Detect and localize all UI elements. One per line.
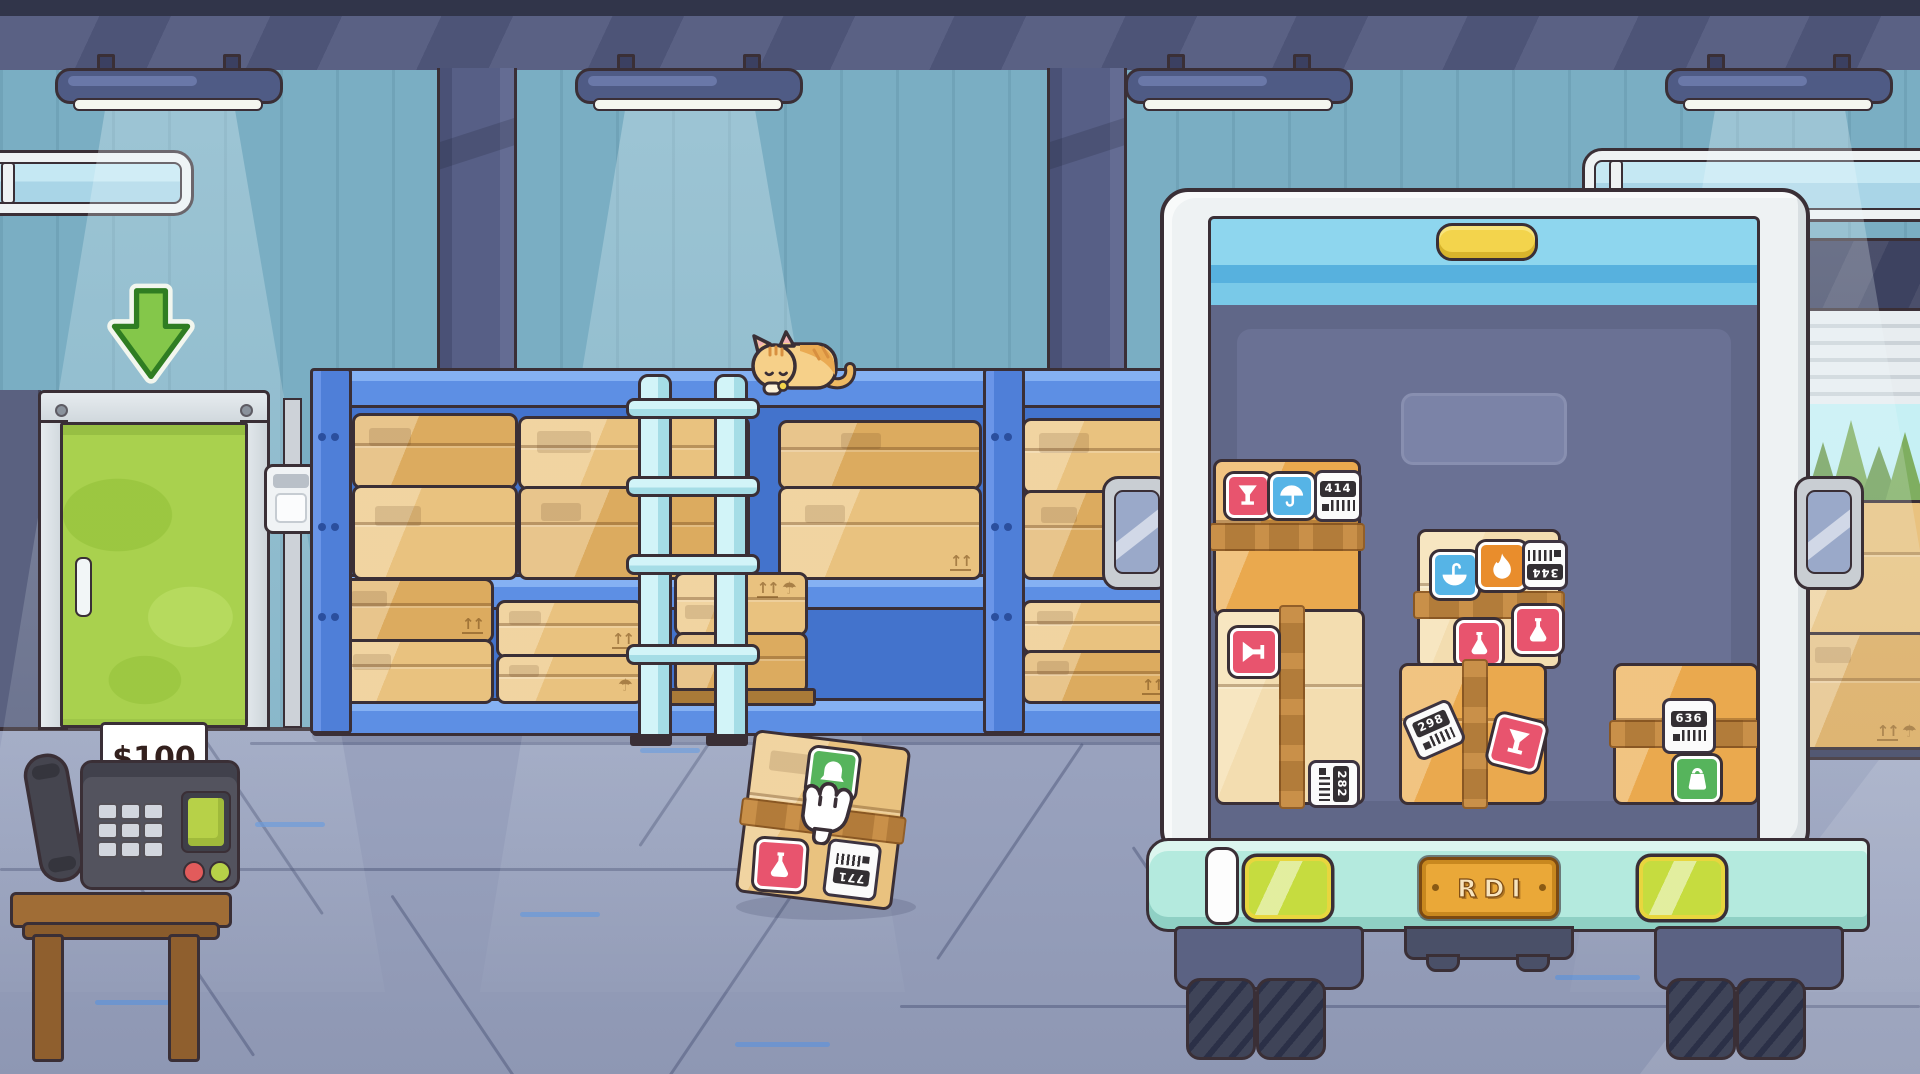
flask-sticker-icon xyxy=(753,838,806,891)
table-leg xyxy=(168,934,200,1062)
terminal-key[interactable] xyxy=(97,803,118,820)
light-highlight xyxy=(1678,76,1807,86)
flask-sticker-icon xyxy=(1514,606,1562,654)
light-glow xyxy=(1143,98,1333,111)
ladder-rung xyxy=(626,554,760,575)
table-leg xyxy=(32,934,64,1062)
printed-icon-up-umb: ↑↑☂ xyxy=(757,581,797,598)
light-highlight xyxy=(1138,76,1267,86)
cargo-wall-plate xyxy=(1401,393,1567,465)
window-glass xyxy=(0,162,182,204)
terminal-key[interactable] xyxy=(143,803,164,820)
floor-dash xyxy=(520,912,600,917)
axle-tab xyxy=(1516,954,1550,972)
weight-sticker-icon xyxy=(1674,756,1720,802)
shelf-box[interactable]: ↑↑ xyxy=(496,600,644,658)
umbrella-sticker-icon xyxy=(1432,552,1478,598)
shelf-box[interactable] xyxy=(1022,600,1174,654)
shelf-box[interactable] xyxy=(352,413,518,489)
floor-dash xyxy=(640,748,700,753)
terminal-key[interactable] xyxy=(143,841,164,858)
ceiling-dark-band xyxy=(0,0,1920,16)
light-highlight xyxy=(68,76,197,86)
terminal-key[interactable] xyxy=(120,822,141,839)
tail-light-right xyxy=(1639,857,1725,919)
warehouse-game-scene: ↑↑☂ ↑↑↑↑↑↑☂↑↑☂↑↑ xyxy=(0,0,1920,1074)
bumper-stripe xyxy=(1205,847,1239,925)
terminal-key[interactable] xyxy=(97,822,118,839)
terminal-key[interactable] xyxy=(97,841,118,858)
shelf-box[interactable]: ☂ xyxy=(496,654,644,704)
fragile-sticker-icon xyxy=(1230,628,1278,676)
floor-dash xyxy=(255,822,325,827)
barcode-number: 414 xyxy=(1320,481,1355,497)
light-glow xyxy=(1683,98,1873,111)
barcode-number: 282 xyxy=(1333,766,1349,801)
license-plate: RDI xyxy=(1419,857,1559,919)
license-plate-text: RDI xyxy=(1450,874,1527,903)
barcode-sticker: 636 xyxy=(1662,698,1716,754)
barcode-sticker: 298 xyxy=(1400,697,1467,762)
truck-tire xyxy=(1256,978,1326,1060)
floor-dash xyxy=(735,1042,830,1047)
truck-cargo-box[interactable]: 298 xyxy=(1399,663,1547,805)
sleeping-cat[interactable] xyxy=(742,326,866,404)
ladder-rung xyxy=(626,644,760,665)
green-door[interactable] xyxy=(60,422,248,728)
barcode-number: 344 xyxy=(1528,564,1563,580)
fire-sticker-icon xyxy=(1478,542,1526,590)
shelf-box[interactable]: ↑↑ xyxy=(338,578,494,643)
tail-light-left xyxy=(1245,857,1331,919)
delivery-truck: 414282344298636 RDI xyxy=(1160,188,1920,1074)
truck-cargo-area[interactable]: 414282344298636 xyxy=(1211,305,1757,851)
umbrella-sticker-icon xyxy=(1270,474,1314,518)
ceiling-striped-band xyxy=(0,16,1920,74)
barcode-number: 771 xyxy=(833,867,870,887)
terminal-keypad[interactable] xyxy=(97,803,169,863)
shelf-box[interactable] xyxy=(338,639,494,704)
wall-shadow-strip xyxy=(0,390,41,728)
fragile-sticker-icon xyxy=(1487,713,1548,774)
truck-cargo-opening[interactable]: 414282344298636 xyxy=(1208,216,1760,854)
barcode-sticker: 414 xyxy=(1314,470,1362,522)
shelf-post xyxy=(310,368,352,734)
printed-icon-up: ↑↑ xyxy=(950,554,971,571)
terminal-key[interactable] xyxy=(120,841,141,858)
axle-tab xyxy=(1426,954,1460,972)
wall-window-left xyxy=(0,150,194,216)
barcode-sticker: 344 xyxy=(1522,540,1568,590)
truck-shutter xyxy=(1211,219,1757,309)
shelf-box[interactable]: ↑↑ xyxy=(778,486,982,580)
card-payment-terminal[interactable] xyxy=(80,760,240,890)
shutter-handle[interactable] xyxy=(1436,223,1538,261)
ladder-rung xyxy=(626,398,760,419)
ladder-foot xyxy=(630,734,672,746)
shelf-box[interactable] xyxy=(352,485,518,580)
down-arrow-icon xyxy=(101,282,201,390)
truck-cargo-box[interactable]: 636 xyxy=(1613,663,1759,805)
truck-bumper: RDI xyxy=(1146,838,1870,932)
truck-cargo-box[interactable]: 282 xyxy=(1215,609,1365,805)
terminal-key[interactable] xyxy=(143,822,164,839)
wall-conduit xyxy=(283,398,302,728)
support-column xyxy=(1047,68,1127,383)
shelf-box[interactable] xyxy=(778,420,982,490)
door-handle xyxy=(75,557,92,617)
barcode-sticker: 282 xyxy=(1308,760,1360,808)
terminal-red-button[interactable] xyxy=(183,861,205,883)
barcode-number: 636 xyxy=(1671,711,1706,727)
shelf-post xyxy=(983,368,1025,734)
truck-cargo-box[interactable]: 414 xyxy=(1213,459,1361,617)
terminal-key[interactable] xyxy=(120,803,141,820)
ladder-foot xyxy=(706,734,748,746)
ladder-rung xyxy=(626,476,760,497)
light-glow xyxy=(593,98,783,111)
truck-cargo-box[interactable]: 344 xyxy=(1417,529,1561,669)
shelf-box[interactable]: ↑↑ xyxy=(1022,650,1174,704)
truck-tire xyxy=(1736,978,1806,1060)
light-highlight xyxy=(588,76,717,86)
support-column xyxy=(437,68,517,383)
dragged-box[interactable]: 771 xyxy=(735,729,912,911)
printed-icon-up: ↑↑ xyxy=(462,617,483,634)
fragile-sticker-icon xyxy=(1226,474,1270,518)
light-glow xyxy=(73,98,263,111)
terminal-screen xyxy=(181,791,231,853)
terminal-green-button[interactable] xyxy=(209,861,231,883)
printed-icon-umbrella: ☂ xyxy=(618,678,633,695)
window-divider xyxy=(1,162,15,204)
truck-tire xyxy=(1186,978,1256,1060)
hand-cursor xyxy=(788,765,863,848)
truck-tire xyxy=(1666,978,1736,1060)
